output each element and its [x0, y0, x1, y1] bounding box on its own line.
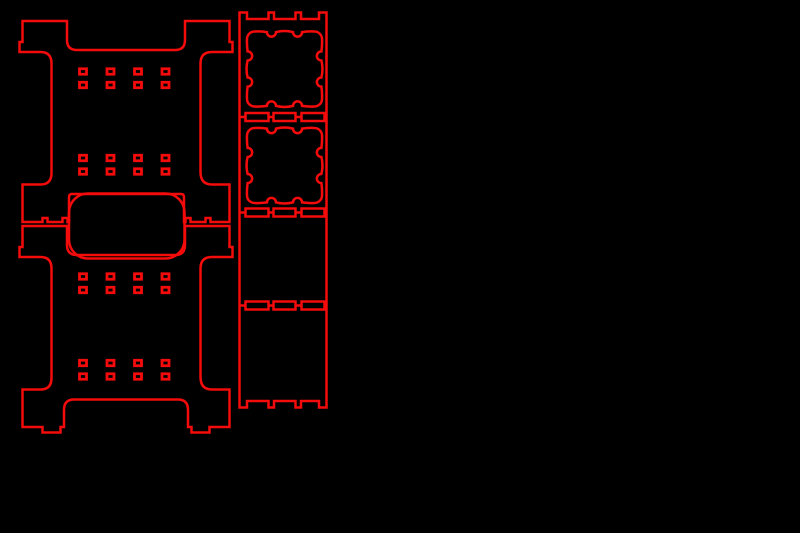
strip-joint-slot: [274, 113, 296, 121]
panel-tab-slot: [80, 287, 87, 293]
panel-tab-slot: [162, 82, 169, 88]
panel-tab-slot: [162, 274, 169, 280]
panel-tab-slot: [135, 287, 142, 293]
panel-tab-slot: [107, 360, 114, 366]
panel-tab-slot: [107, 169, 114, 175]
panel-tab-slot: [162, 169, 169, 175]
panel-tab-slot: [107, 155, 114, 161]
panel-tab-slot: [135, 169, 142, 175]
panel-tab-slot: [80, 69, 87, 75]
side-panel-top-outline: [20, 21, 233, 222]
panel-tab-slot: [107, 69, 114, 75]
rail-strip-outline: [240, 13, 327, 408]
panel-tab-slot: [80, 155, 87, 161]
panel-tab-slot: [135, 155, 142, 161]
strip-joint-slot: [246, 209, 269, 217]
panel-tab-slot: [107, 82, 114, 88]
panel-tab-slot: [135, 360, 142, 366]
panel-tab-slot: [80, 360, 87, 366]
panel-tab-slot: [107, 287, 114, 293]
panel-tab-slot: [107, 274, 114, 280]
panel-tab-slot: [107, 374, 114, 380]
rounded-plate-outline: [69, 194, 185, 259]
viewer-canvas: [0, 0, 800, 533]
panel-tab-slot: [135, 82, 142, 88]
ornate-square-cutout: [247, 31, 323, 107]
panel-tab-slot: [135, 374, 142, 380]
panel-tab-slot: [162, 287, 169, 293]
panel-tab-slot: [162, 69, 169, 75]
side-panel-bottom-outline: [20, 226, 233, 433]
panel-tab-slot: [162, 374, 169, 380]
strip-joint-slot: [246, 113, 269, 121]
panel-tab-slot: [135, 69, 142, 75]
panel-tab-slot: [80, 374, 87, 380]
strip-joint-slot: [302, 302, 325, 310]
strip-joint-slot: [246, 302, 269, 310]
strip-joint-slot: [302, 209, 325, 217]
panel-tab-slot: [80, 274, 87, 280]
panel-tab-slot: [135, 274, 142, 280]
panel-tab-slot: [162, 155, 169, 161]
ornate-square-cutout: [247, 128, 323, 204]
panel-tab-slot: [80, 169, 87, 175]
laser-cut-layout-drawing: [0, 0, 800, 533]
panel-tab-slot: [162, 360, 169, 366]
strip-joint-slot: [302, 113, 325, 121]
strip-joint-slot: [274, 209, 296, 217]
strip-joint-slot: [274, 302, 296, 310]
panel-tab-slot: [80, 82, 87, 88]
